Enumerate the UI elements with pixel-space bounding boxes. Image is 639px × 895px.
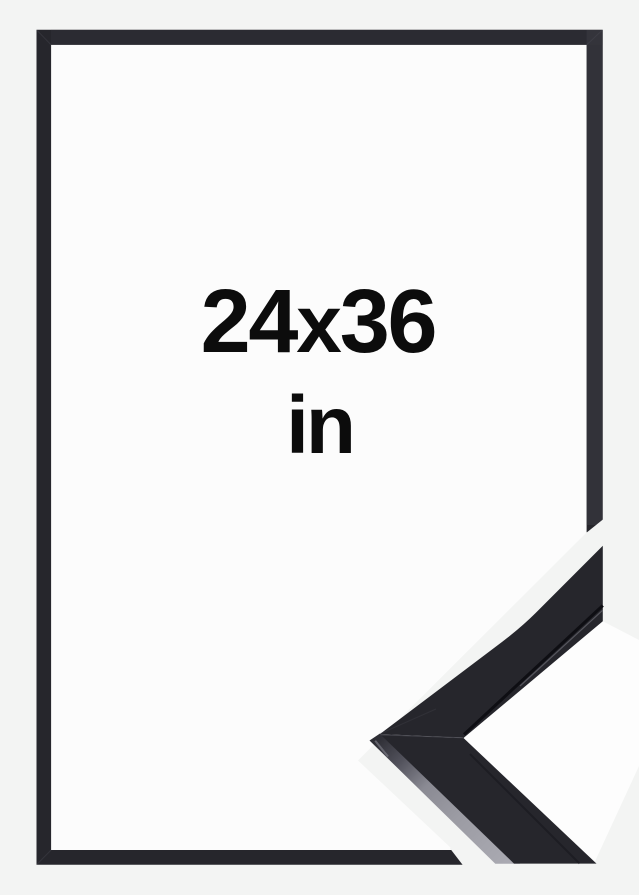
svg-text:24x36: 24x36: [201, 272, 436, 372]
svg-text:in: in: [286, 380, 353, 471]
